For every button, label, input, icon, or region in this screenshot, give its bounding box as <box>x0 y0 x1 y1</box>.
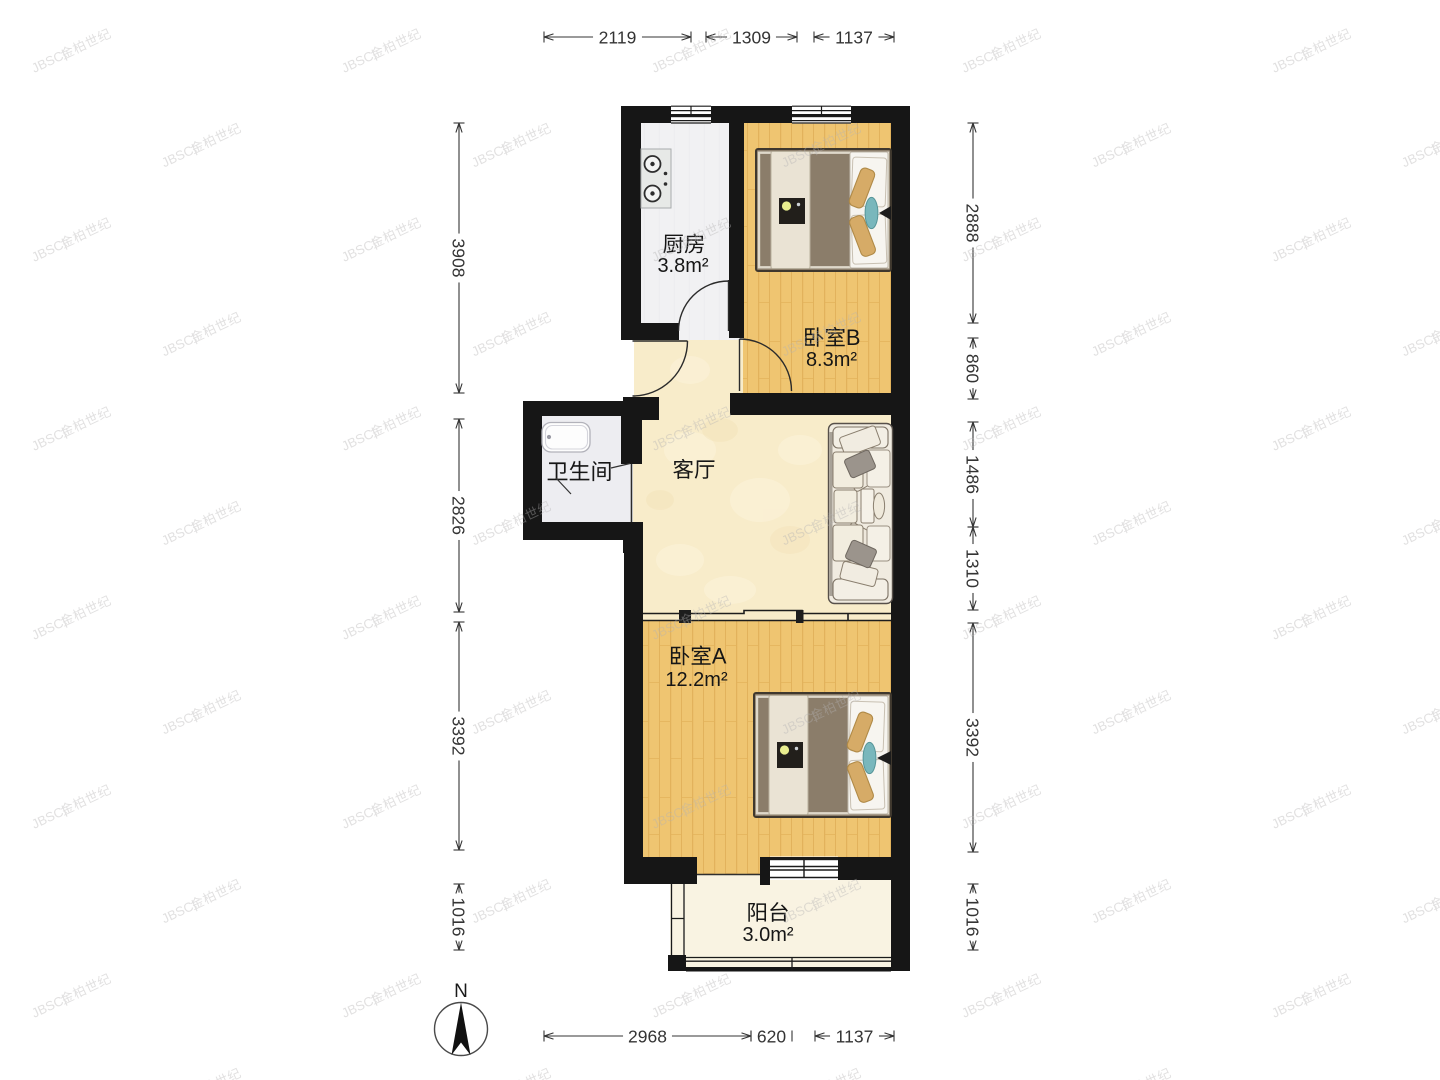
svg-text:3908: 3908 <box>449 239 469 278</box>
svg-text:A: A <box>712 644 727 669</box>
svg-text:1310: 1310 <box>963 549 983 588</box>
svg-text:3392: 3392 <box>963 718 983 757</box>
svg-text:860: 860 <box>963 354 983 383</box>
svg-text:1486: 1486 <box>963 455 983 494</box>
svg-text:1137: 1137 <box>836 1026 874 1046</box>
svg-text:1016: 1016 <box>963 898 983 937</box>
svg-text:620: 620 <box>757 1026 786 1046</box>
svg-text:2888: 2888 <box>963 204 983 243</box>
svg-text:N: N <box>454 981 468 1002</box>
svg-text:B: B <box>846 325 861 350</box>
svg-text:1309: 1309 <box>732 27 771 47</box>
svg-text:3392: 3392 <box>449 717 469 756</box>
svg-text:12.2m²: 12.2m² <box>665 669 728 691</box>
svg-text:1137: 1137 <box>835 27 873 47</box>
svg-text:3.0m²: 3.0m² <box>742 924 793 946</box>
svg-text:2968: 2968 <box>628 1026 667 1046</box>
svg-text:2119: 2119 <box>599 27 637 47</box>
svg-text:8.3m²: 8.3m² <box>806 349 857 371</box>
svg-text:1016: 1016 <box>449 898 469 937</box>
svg-text:2826: 2826 <box>449 496 469 535</box>
